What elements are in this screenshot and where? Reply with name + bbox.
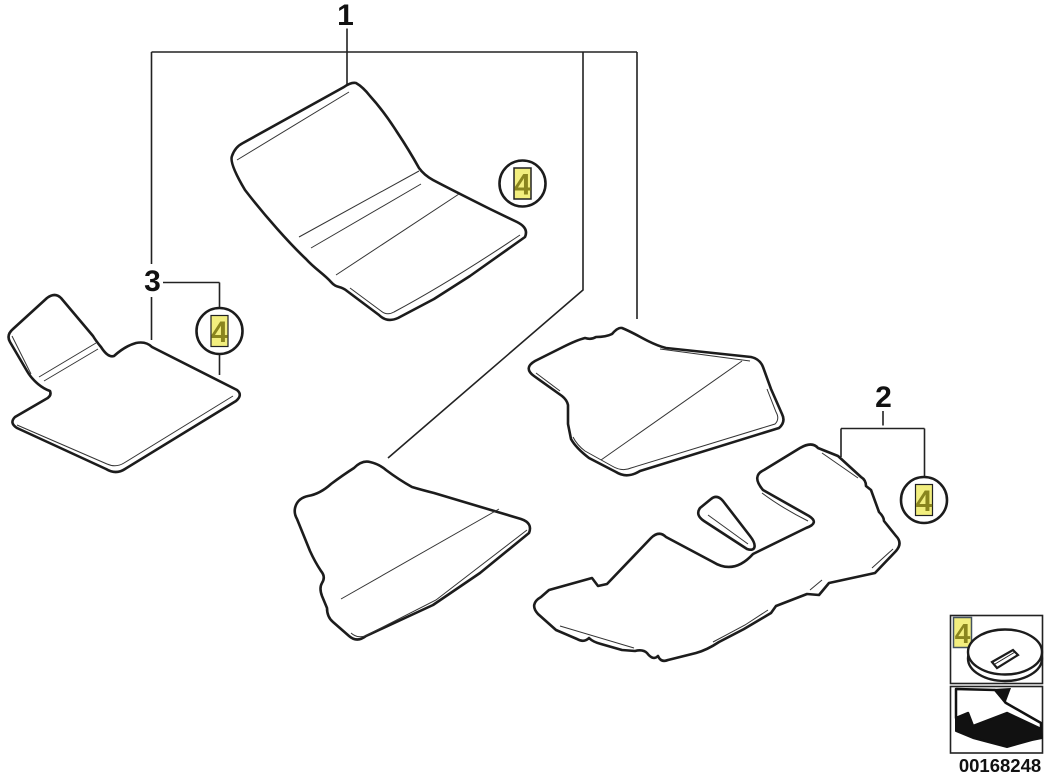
svg-text:4: 4 <box>955 618 971 649</box>
svg-text:1: 1 <box>337 0 354 32</box>
svg-text:3: 3 <box>144 265 161 298</box>
svg-text:4: 4 <box>211 316 228 349</box>
svg-text:4: 4 <box>916 485 933 518</box>
svg-text:2: 2 <box>875 381 892 414</box>
svg-text:4: 4 <box>514 169 531 202</box>
svg-text:00168248: 00168248 <box>959 755 1041 776</box>
